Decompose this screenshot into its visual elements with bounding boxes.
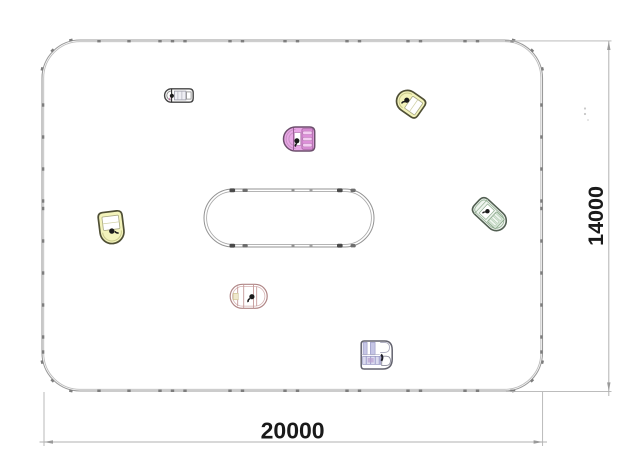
svg-text:14000: 14000: [584, 186, 608, 246]
svg-text:20000: 20000: [261, 417, 325, 443]
